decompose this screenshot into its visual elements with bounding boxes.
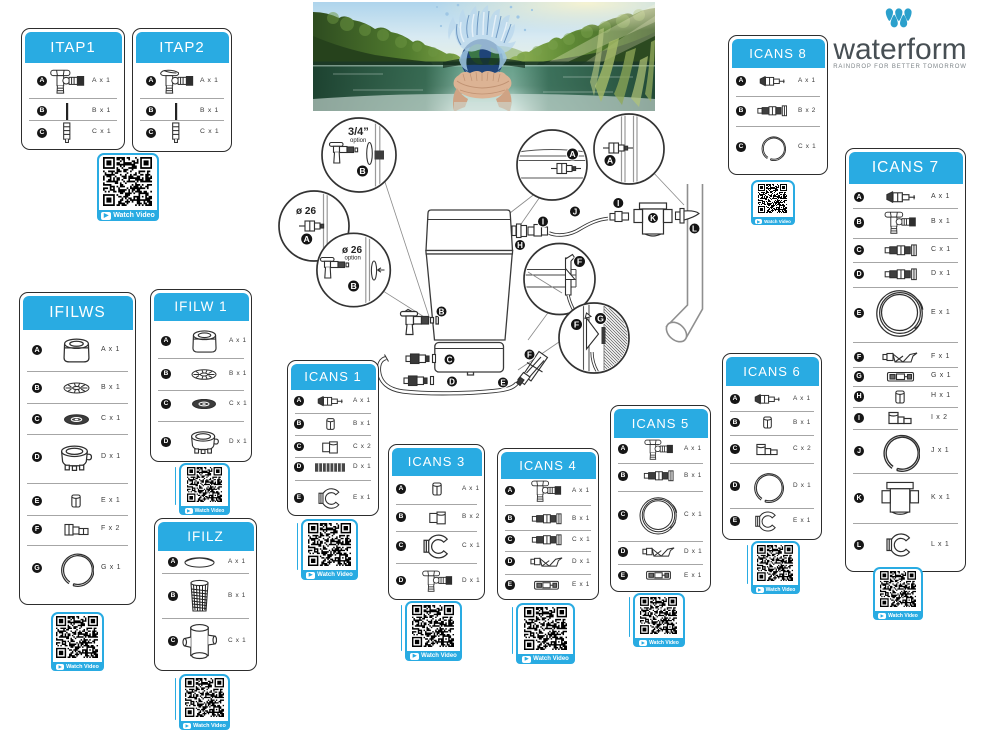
svg-text:F: F — [527, 350, 532, 359]
svg-text:C: C — [447, 355, 453, 364]
svg-text:ø 26: ø 26 — [342, 245, 362, 256]
svg-text:G: G — [597, 314, 604, 324]
svg-text:I: I — [617, 199, 619, 208]
svg-text:H: H — [517, 241, 523, 250]
svg-text:J: J — [573, 207, 577, 216]
svg-text:B: B — [439, 307, 445, 316]
svg-text:option: option — [350, 138, 366, 144]
svg-text:3/4”: 3/4” — [348, 126, 369, 138]
svg-text:B: B — [350, 281, 356, 291]
svg-text:A: A — [569, 149, 576, 159]
svg-text:ø 26: ø 26 — [296, 206, 316, 217]
svg-text:F: F — [577, 257, 582, 267]
svg-text:option: option — [345, 256, 361, 262]
svg-text:F: F — [574, 320, 579, 330]
svg-text:K: K — [650, 214, 656, 223]
svg-text:D: D — [449, 377, 455, 386]
svg-text:E: E — [500, 378, 506, 387]
svg-text:B: B — [359, 166, 365, 176]
svg-text:A: A — [607, 156, 614, 166]
svg-text:L: L — [692, 224, 697, 233]
svg-text:I: I — [542, 217, 544, 226]
svg-text:A: A — [304, 234, 311, 244]
